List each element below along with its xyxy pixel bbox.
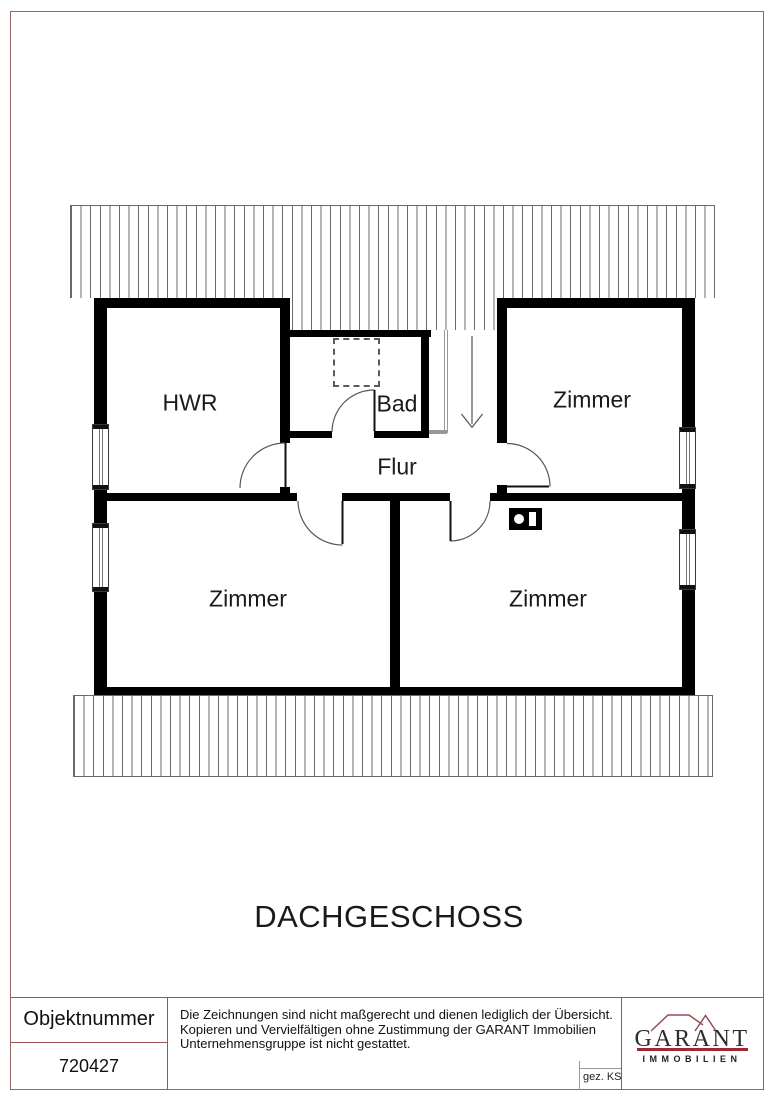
disclaimer-line-3: Unternehmensgruppe ist nicht gestattet. [180, 1037, 615, 1052]
stairs-down-arrow-icon [462, 336, 483, 428]
drawn-by-cell-top-line [579, 1068, 621, 1069]
room-label-zimmer-top-right: Zimmer [553, 387, 631, 414]
plan-vector-overlay [0, 0, 778, 1100]
object-number-label: Objektnummer [11, 997, 167, 1042]
door-arc-hwr [240, 443, 286, 488]
disclaimer-line-1: Die Zeichnungen sind nicht maßgerecht un… [180, 1008, 615, 1023]
floorplan-page: HWR Bad Zimmer Flur Zimmer Zimmer DACHGE… [0, 0, 778, 1100]
disclaimer-line-2: Kopieren und Vervielfältigen ohne Zustim… [180, 1023, 615, 1038]
footer-divider-objnum [167, 997, 168, 1090]
door-arc-zimmer-top-right [507, 444, 550, 487]
door-arc-zimmer-bottom-right [451, 501, 491, 541]
room-label-zimmer-bottom-right: Zimmer [509, 586, 587, 613]
door-arc-zimmer-bottom-left [298, 501, 343, 545]
floor-title: DACHGESCHOSS [0, 899, 778, 935]
room-label-hwr: HWR [163, 390, 218, 417]
door-arc-bad [332, 390, 375, 432]
logo-red-rule [637, 1048, 748, 1051]
logo-subtitle-text: IMMOBILIEN [621, 1054, 763, 1064]
drawn-by-cell-left-line [579, 1061, 580, 1090]
drawn-by-text: gez. KS [583, 1071, 622, 1083]
garant-logo: GARANT IMMOBILIEN [621, 997, 763, 1090]
room-label-flur: Flur [377, 454, 417, 481]
object-number-value: 720427 [11, 1042, 167, 1090]
room-label-zimmer-bottom-left: Zimmer [209, 586, 287, 613]
disclaimer-text: Die Zeichnungen sind nicht maßgerecht un… [180, 1008, 615, 1052]
room-label-bad: Bad [377, 391, 418, 418]
